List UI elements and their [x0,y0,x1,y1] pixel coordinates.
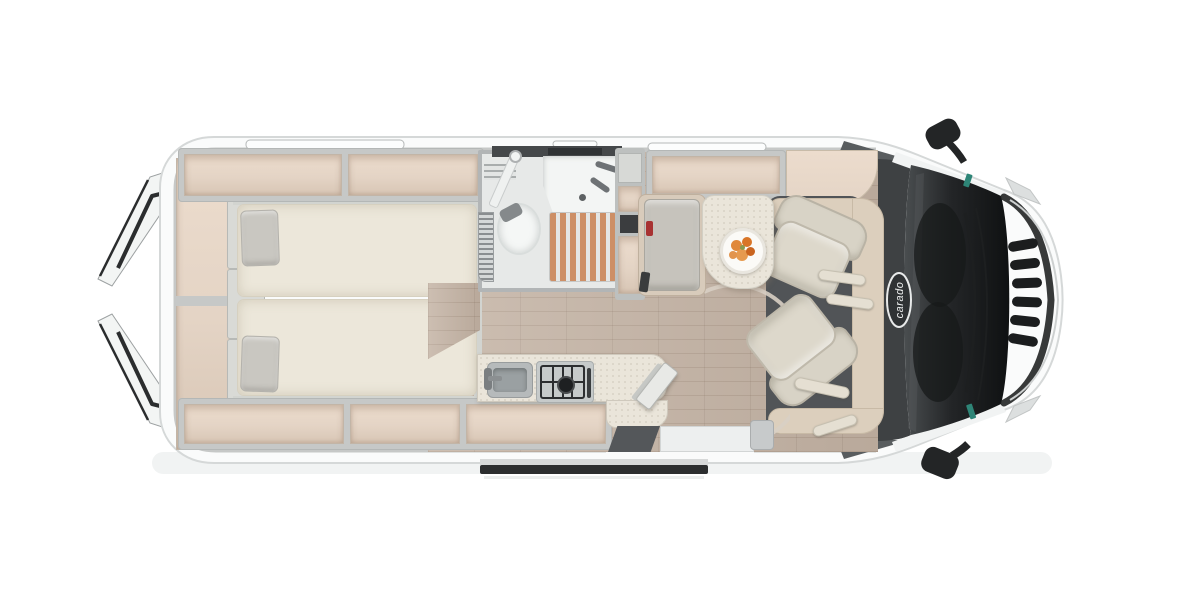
entry-floor [660,426,754,452]
seatbelt-buckle [646,221,653,236]
carado-logo: carado [887,273,911,327]
basin-drain [579,194,586,201]
locker-compartment [184,154,342,196]
dinette-table [702,195,774,289]
gas-hob [536,361,594,403]
shower-floor [549,212,617,282]
locker-compartment [466,404,606,444]
fruit [746,247,755,256]
pillow-top [240,209,280,266]
floorplan-canvas: carado [0,0,1200,600]
hob-controls [587,368,591,398]
locker-compartment [350,404,460,444]
tambour-door [478,212,494,282]
locker-compartment [184,404,344,444]
sliding-door-open [480,459,708,479]
locker-compartment [348,154,478,196]
hob-burner [557,376,575,394]
rear-wall-divider [176,296,234,306]
counter-extension [606,400,668,428]
carado-logo-text: carado [894,282,906,319]
roof-vent-glass [548,148,602,155]
locker-compartment [652,156,780,194]
fruit-leaf [740,245,745,250]
fruit-plate [720,228,766,274]
cabinet-door [618,153,642,183]
side-mirror-top [922,115,964,162]
fruit [729,251,737,259]
pillow-bottom [240,335,280,392]
faucet-spout [488,376,502,381]
bench-cushion [644,199,700,291]
windshield [904,165,1009,435]
door-hinge [509,150,522,163]
entry-step [750,420,774,450]
